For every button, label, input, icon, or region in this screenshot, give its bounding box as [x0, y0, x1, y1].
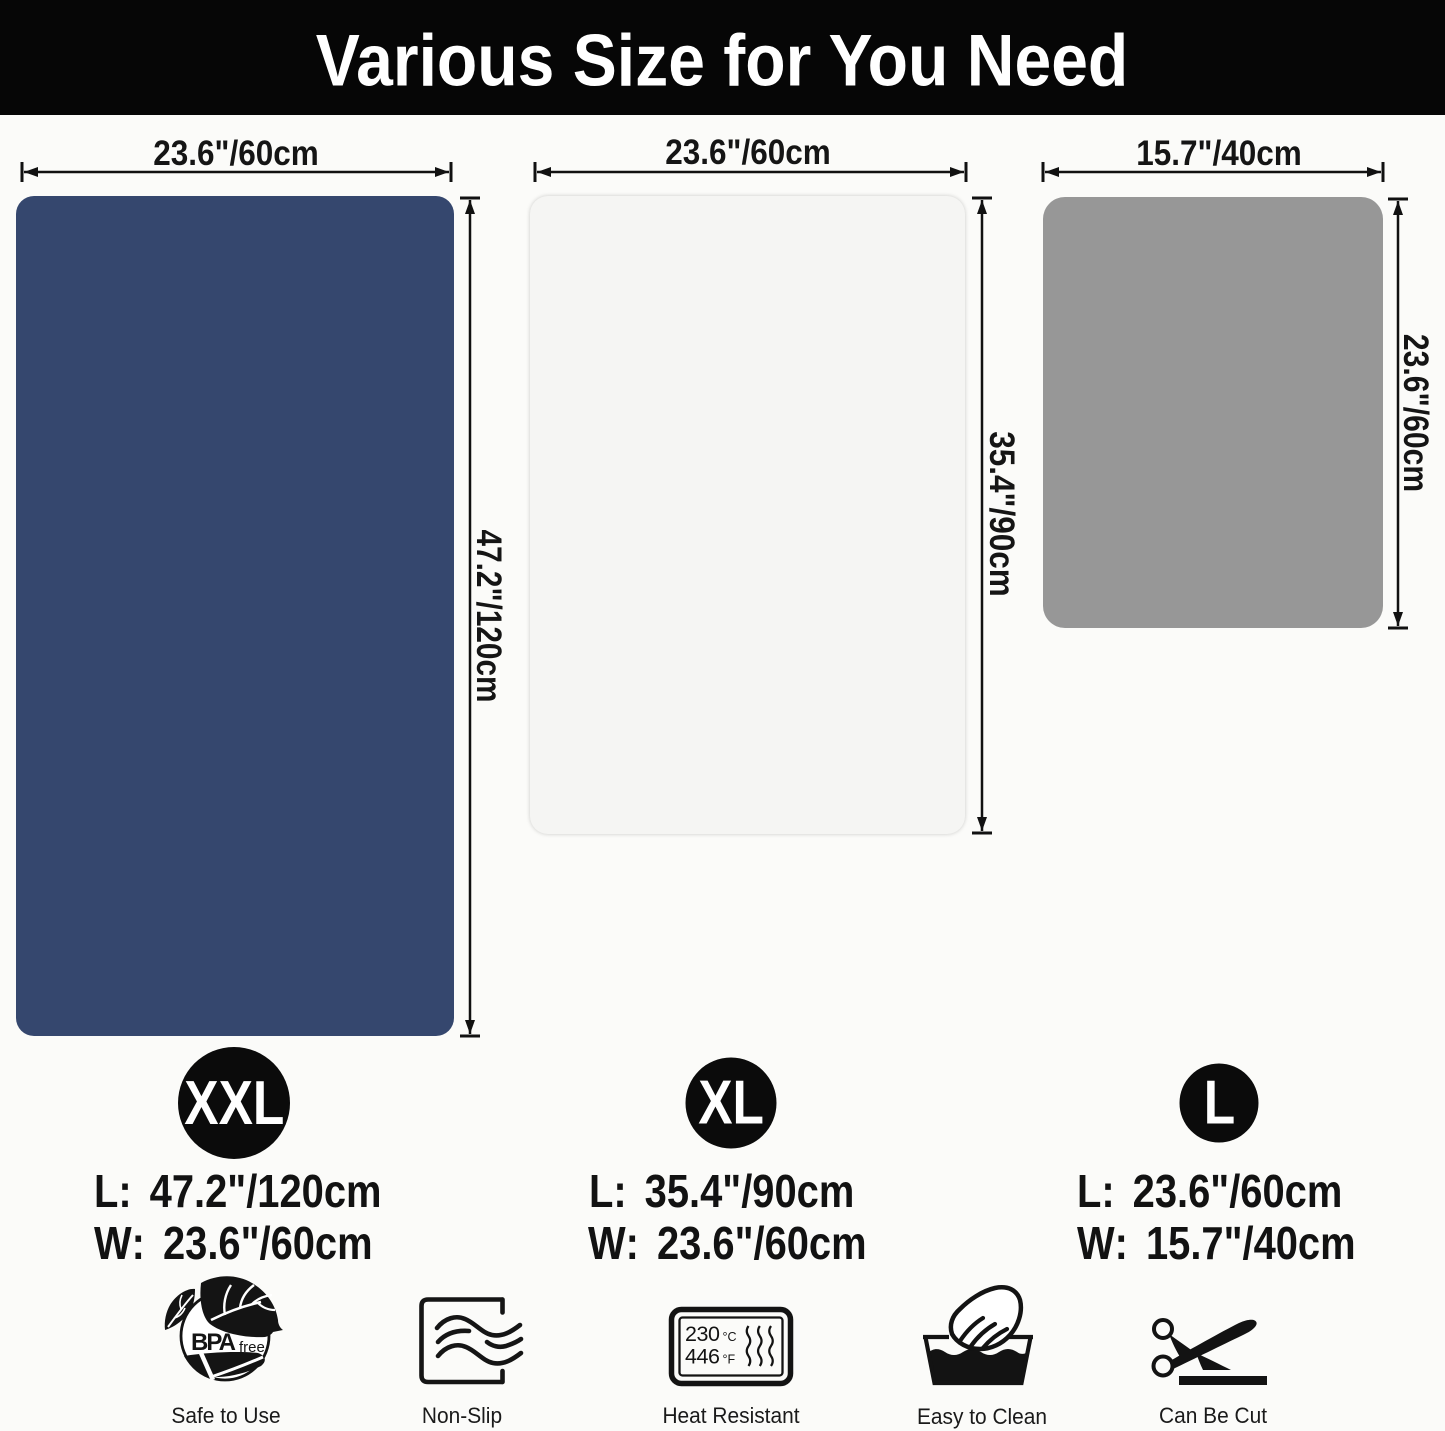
- svg-text:free: free: [239, 1339, 265, 1356]
- svg-text:446: 446: [685, 1345, 720, 1369]
- svg-text:BPA: BPA: [191, 1329, 236, 1356]
- svg-text:°C: °C: [723, 1330, 737, 1344]
- svg-text:°F: °F: [723, 1353, 736, 1367]
- svg-text:230: 230: [685, 1322, 720, 1346]
